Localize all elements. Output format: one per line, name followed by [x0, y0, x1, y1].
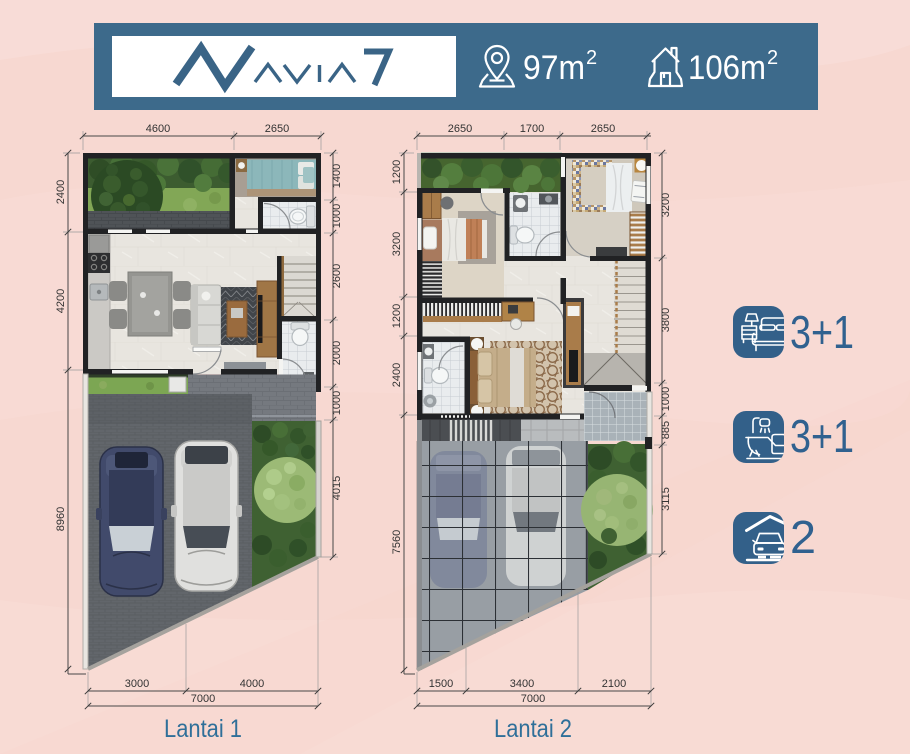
svg-text:2000: 2000: [331, 341, 343, 365]
svg-text:1200: 1200: [391, 160, 403, 184]
svg-text:3+1: 3+1: [790, 410, 854, 462]
svg-text:Lantai 2: Lantai 2: [494, 715, 572, 743]
svg-text:7560: 7560: [391, 530, 403, 554]
svg-text:2400: 2400: [391, 363, 403, 387]
svg-text:1500: 1500: [429, 678, 453, 690]
svg-text:1700: 1700: [520, 123, 544, 135]
svg-text:2: 2: [586, 47, 597, 69]
svg-text:Lantai 1: Lantai 1: [164, 715, 242, 743]
svg-text:4015: 4015: [331, 476, 343, 500]
svg-text:2650: 2650: [591, 123, 615, 135]
svg-text:3400: 3400: [510, 678, 534, 690]
svg-text:3+1: 3+1: [790, 306, 854, 358]
svg-text:1400: 1400: [331, 164, 343, 188]
svg-text:3800: 3800: [660, 308, 672, 332]
svg-text:4200: 4200: [55, 289, 67, 313]
svg-text:3000: 3000: [125, 678, 149, 690]
svg-text:7000: 7000: [521, 693, 545, 705]
svg-text:1000: 1000: [660, 387, 672, 411]
svg-text:7000: 7000: [191, 693, 215, 705]
svg-text:97m: 97m: [523, 49, 585, 87]
svg-text:4600: 4600: [146, 123, 170, 135]
svg-text:1000: 1000: [331, 204, 343, 228]
svg-text:106m: 106m: [688, 49, 766, 87]
svg-text:8960: 8960: [55, 507, 67, 531]
svg-text:2650: 2650: [265, 123, 289, 135]
svg-text:2: 2: [790, 511, 816, 563]
svg-text:3200: 3200: [660, 193, 672, 217]
svg-text:2100: 2100: [602, 678, 626, 690]
svg-text:1200: 1200: [391, 304, 403, 328]
svg-text:2650: 2650: [448, 123, 472, 135]
svg-text:885: 885: [660, 421, 672, 439]
svg-text:2400: 2400: [55, 180, 67, 204]
svg-text:1000: 1000: [331, 391, 343, 415]
svg-text:4000: 4000: [240, 678, 264, 690]
svg-text:3115: 3115: [660, 487, 672, 511]
svg-text:2600: 2600: [331, 264, 343, 288]
svg-text:3200: 3200: [391, 232, 403, 256]
svg-text:2: 2: [767, 47, 778, 69]
